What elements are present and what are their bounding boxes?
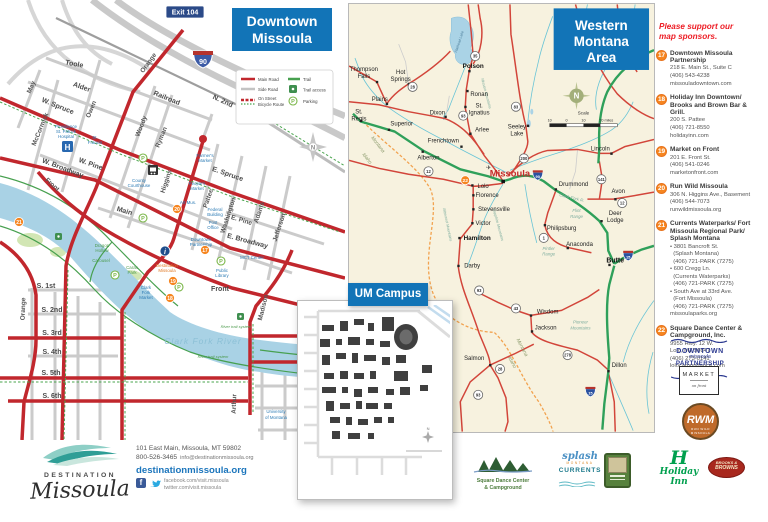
holiday-inn-text: Holiday Inn — [656, 467, 702, 487]
email-address: info@destinationmissoula.org — [180, 455, 253, 461]
poi-dragon-hollow: Hollow — [95, 248, 109, 253]
town-alberton: Alberton — [417, 155, 439, 161]
legend-trail: Trail — [303, 77, 311, 82]
interstate-15-shield: 15 — [585, 387, 595, 397]
sponsor-number-badge: 21 — [656, 220, 667, 231]
town-hamilton: Hamilton — [464, 235, 491, 242]
bus-transfer-icon — [148, 165, 158, 175]
poi-public-library: Library — [215, 273, 229, 278]
square-dance-text: Square Dance Center — [468, 478, 538, 485]
market-on-front-logo: MARKET on front — [679, 366, 719, 395]
town-victor: Victor — [476, 221, 491, 227]
exit-104-badge: Exit 104 — [166, 6, 204, 18]
sponsor-detail-line: (406) 543-4238 — [670, 73, 762, 81]
street-label-front-w: Front — [43, 177, 61, 194]
sponsor-detail-line: (406) 541-0246 — [670, 162, 762, 170]
town-lincoln: Lincoln — [591, 146, 610, 152]
sponsor-detail-line: 218 E. Main St., Suite C — [670, 65, 762, 73]
poi-hospital: Hospital — [58, 134, 74, 139]
street-label-s-2nd: S. 2nd — [41, 307, 62, 314]
sponsor-entry-19: 19 Market on Front 201 E. Front St.(406)… — [656, 146, 764, 177]
sponsor-entry-21: 21 Currents Waterparks/ Fort Missoula Re… — [656, 220, 764, 319]
street-label-higgins: Higgins — [160, 169, 174, 194]
svg-text:Western: Western — [575, 18, 628, 33]
sponsor-detail-line: runwildmissoula.org — [670, 207, 762, 215]
street-label-toole: Toole — [65, 59, 84, 69]
fort-missoula-text-bar — [610, 479, 625, 481]
holiday-h-icon: H — [656, 449, 702, 467]
svg-text:Scale: Scale — [578, 111, 590, 116]
square-dance-text: & Campground — [468, 485, 538, 492]
phone-number: 800-526-3465 — [136, 454, 177, 461]
svg-text:43: 43 — [514, 306, 519, 311]
sponsor-detail-line: (Fort Missoula) — [670, 296, 762, 304]
town-darby: Darby — [464, 264, 480, 270]
svg-text:12: 12 — [426, 169, 431, 174]
svg-text:N: N — [574, 92, 580, 101]
svg-text:22: 22 — [462, 178, 468, 184]
svg-text:0: 0 — [566, 119, 568, 123]
town-seeley-lake: Lake — [510, 132, 524, 138]
sponsor-entry-20: 20 Run Wild Missoula 306 N. Higgins Ave.… — [656, 183, 764, 214]
geo-label-pioneer-mountains: Pioneer — [573, 319, 589, 324]
downtown-title-box: Downtown Missoula — [232, 8, 332, 51]
legend-bike-route: On Street — [258, 96, 277, 101]
downtown-missoula-map: Toole Alder W. Spruce May McCormick Owen… — [0, 0, 345, 440]
town-wisdom: Wisdom — [537, 309, 559, 315]
compass-rose-icon: N — [563, 82, 591, 110]
trees-icon — [468, 456, 538, 473]
geo-label-montana: Montana — [369, 135, 386, 154]
street-label-madison: Madison — [257, 294, 270, 321]
geo-label-flint-range: Flint — [572, 208, 581, 213]
poi-st-francis: Francis — [88, 140, 103, 145]
hospital-icon: H — [62, 141, 73, 152]
sponsor-detail-line: (406) 721-8550 — [670, 125, 762, 133]
airport-icon: ✈ — [486, 164, 491, 171]
poi-clark-fork-market: Market — [139, 295, 153, 300]
town-seeley-lake: Seeley — [508, 125, 526, 131]
town-thompson-falls: Falls — [358, 74, 371, 80]
street-label-s-1st: S. 1st — [37, 283, 56, 290]
town-lolo: Lolo — [477, 184, 489, 190]
svg-text:N: N — [311, 145, 315, 151]
twitter-handle: twitter.com/visit.missoula — [164, 485, 229, 492]
brand-missoula-script: Missoula — [30, 478, 131, 503]
sponsor-detail-line: (Currents Waterparks) — [670, 274, 762, 282]
town-anaconda: Anaconda — [566, 242, 594, 248]
geo-label-pintler-range: Range — [542, 252, 555, 257]
sponsor-detail-line: missouladowntown.com — [670, 81, 762, 89]
wave-icon — [557, 481, 603, 487]
town-drummond: Drummond — [559, 182, 588, 188]
svg-text:90: 90 — [536, 174, 541, 179]
poi-courthouse: Courthouse — [128, 183, 151, 188]
website-url: destinationmissoula.org — [136, 465, 256, 476]
map-legend: Main Road Side Road On Street Bicycle Ro… — [236, 70, 333, 124]
river-trail-label: River trail system — [221, 324, 252, 329]
town-st-regis: Regis — [351, 117, 366, 123]
holiday-inn-logo: H Holiday Inn — [656, 449, 702, 487]
town-dillon: Dillon — [612, 363, 627, 369]
town-deer-lodge: Deer — [609, 211, 622, 217]
poi-peoples-market: Market — [190, 186, 204, 191]
town-hot-springs: Hot — [396, 70, 406, 76]
svg-text:Montana: Montana — [574, 34, 630, 49]
legend-bike-route: Bicycle Route — [258, 102, 285, 107]
sponsor-entry-18: 18 Holiday Inn Downtown/ Brooks and Brow… — [656, 94, 764, 140]
poi-caras-park: Park — [127, 270, 137, 275]
street-label-s-4th: S. 4th — [42, 349, 61, 356]
divider — [690, 380, 708, 381]
sponsor-detail-line: (406) 721-PARK (7275) — [670, 259, 762, 267]
poi-downtown-partnership: Partnership — [190, 242, 213, 247]
town-thompson-falls: Thompson — [350, 67, 378, 73]
street-label-s-3rd: S. 3rd — [42, 330, 61, 337]
poi-carousel: Carousel — [92, 258, 110, 263]
svg-text:P: P — [141, 216, 145, 222]
svg-text:12: 12 — [620, 201, 625, 206]
sponsor-detail-line: • 3801 Bancroft St. — [670, 244, 762, 252]
swoosh-icon — [37, 440, 123, 466]
town-philipsburg: Philipsburg — [547, 226, 576, 232]
svg-text:28: 28 — [410, 84, 415, 89]
holiday-inn-brooks-logos: H Holiday Inn BROOKS & BROWNS — [656, 449, 766, 487]
geo-label-bitterroot-mountains: Bitterroot Mountains — [442, 208, 453, 242]
svg-text:93: 93 — [461, 113, 466, 118]
town-jackson: Jackson — [535, 325, 557, 331]
town-deer-lodge: Lodge — [607, 218, 624, 224]
river-name-label: Clark Fork River — [164, 336, 242, 346]
um-campus-title-box: UM Campus — [348, 283, 428, 306]
poi-university: University — [266, 409, 286, 414]
poi-federal-building: Building — [207, 212, 223, 217]
geo-label-pioneer-mountains: Mountains — [570, 325, 591, 330]
street-label-arthur: Arthur — [231, 393, 239, 414]
svg-text:28: 28 — [498, 367, 503, 372]
town-stevensville: Stevensville — [478, 207, 510, 213]
currents-text: CURRENTS — [554, 467, 606, 474]
street-label-alder: Alder — [72, 81, 91, 94]
svg-text:10: 10 — [548, 119, 552, 123]
um-campus-map: N — [302, 305, 450, 477]
svg-text:83: 83 — [514, 104, 519, 109]
sponsor-detail-line: • South Ave at 33rd Ave. — [670, 289, 762, 297]
svg-text:93: 93 — [477, 288, 482, 293]
sponsors-sidebar: Please support our map sponsors. 17 Down… — [656, 22, 764, 377]
poi-university: of Montana — [265, 415, 288, 420]
fort-missoula-text-bar — [610, 475, 625, 477]
run-wild-missoula-logo: RWM RUN WILD MISSOULA — [682, 403, 719, 440]
sponsor-detail-line: (406) 721-PARK (7275) — [670, 304, 762, 312]
town-butte: Butte — [606, 258, 624, 265]
sponsor-name: Downtown Missoula Partnership — [670, 50, 762, 65]
legend-parking: Parking — [303, 99, 318, 104]
svg-text:10: 10 — [581, 119, 585, 123]
square-dance-logo: Square Dance Center & Campground — [468, 456, 538, 491]
river-trail-label: River trail system — [198, 354, 229, 359]
svg-text:278: 278 — [564, 353, 572, 358]
svg-text:Missoula: Missoula — [252, 30, 312, 46]
sponsor-number-badge: 22 — [656, 325, 667, 336]
splash-currents-logo: splash MONTANA CURRENTS — [554, 451, 606, 492]
contact-block: 101 East Main, Missoula, MT 59802 800-52… — [136, 445, 256, 492]
svg-text:93: 93 — [476, 392, 481, 397]
brooks-logo-text: BROWNS — [709, 466, 744, 472]
street-label-n-2nd: N. 2nd — [211, 94, 233, 109]
sponsor-name: Run Wild Missoula — [670, 183, 762, 190]
svg-text:N: N — [427, 426, 430, 431]
svg-text:P: P — [113, 273, 117, 279]
street-label-orange-s: Orange — [20, 297, 28, 320]
address-line: 101 East Main, Missoula, MT 59802 — [136, 445, 256, 454]
svg-text:P: P — [141, 156, 145, 162]
sponsor-name: Holiday Inn Downtown/ Brooks and Brown B… — [670, 94, 762, 116]
wave-icon — [671, 338, 729, 343]
campus-diagonal-road — [418, 311, 450, 337]
interstate-15-shield: 15 — [623, 251, 633, 261]
geo-label-pintler-range: Pintler — [543, 246, 556, 251]
town-avon: Avon — [612, 189, 625, 195]
town-florence: Florence — [476, 193, 500, 199]
sponsor-detail-line: 201 E. Front St. — [670, 155, 762, 163]
town-dixon: Dixon — [430, 111, 445, 117]
destination-missoula-logo: DESTINATION Missoula — [30, 440, 130, 502]
svg-text:18: 18 — [167, 296, 173, 302]
svg-text:15: 15 — [588, 390, 593, 395]
poi-farmers-market: Market — [198, 158, 212, 163]
sponsor-detail-line: holidayinn.com — [670, 133, 762, 141]
svg-text:20 miles: 20 miles — [599, 119, 613, 123]
svg-text:200: 200 — [520, 156, 528, 161]
stadium-field — [400, 330, 413, 345]
street-label-s-5th: S. 5th — [41, 370, 60, 377]
svg-text:15: 15 — [626, 254, 631, 259]
sponsor-detail-line: missoulaparks.org — [670, 311, 762, 319]
street-label-s-6th: S. 6th — [42, 393, 61, 400]
sponsor-number-badge: 19 — [656, 146, 667, 157]
svg-text:P: P — [177, 285, 181, 291]
poi-destination-missoula: Missoula — [158, 268, 176, 273]
market-logo-text: on front — [680, 383, 718, 388]
brooks-and-browns-logo: BROOKS & BROWNS — [708, 457, 745, 478]
western-title-box: Western Montana Area — [554, 8, 649, 70]
geo-label-clark-fork-river: Clark Fork R. — [559, 192, 585, 203]
town-hot-springs: Springs — [391, 77, 411, 83]
map-brochure-page: Toole Alder W. Spruce May McCormick Owen… — [0, 0, 768, 522]
info-icon: i — [160, 246, 170, 256]
town-st-ignatius: Ignatius — [469, 111, 490, 117]
sponsor-name: Market on Front — [670, 146, 762, 153]
svg-text:P: P — [219, 259, 223, 265]
svg-text:Exit 104: Exit 104 — [172, 10, 199, 17]
poi-post-office: Office — [207, 225, 219, 230]
sponsor-detail-line: 200 S. Pattee — [670, 117, 762, 125]
sponsor-detail-line: (406) 721-PARK (7275) — [670, 281, 762, 289]
svg-text:35: 35 — [473, 54, 478, 59]
street-label-pattee: Pattee — [202, 188, 215, 209]
sponsor-entry-17: 17 Downtown Missoula Partnership 218 E. … — [656, 50, 764, 89]
campus-compass-icon: N — [422, 426, 434, 443]
sponsor-map-marker-22: 22 — [461, 176, 470, 185]
scale-bar: Scale 10 0 10 20 miles — [548, 111, 618, 127]
sponsor-detail-line: (406) 544-7073 — [670, 199, 762, 207]
svg-text:21: 21 — [16, 220, 22, 226]
twitter-bird-icon — [149, 478, 161, 488]
sponsors-heading: Please support our map sponsors. — [659, 22, 743, 43]
sponsor-number-badge: 17 — [656, 50, 667, 61]
fort-missoula-logo — [604, 453, 631, 488]
sponsor-detail-line: (Splash Montana) — [670, 251, 762, 259]
svg-text:19: 19 — [170, 279, 176, 285]
poi-mct-center: MCT Center — [240, 255, 264, 260]
missoula-dot — [501, 180, 505, 184]
svg-text:Area: Area — [586, 50, 616, 65]
svg-text:17: 17 — [202, 248, 208, 254]
street-label-e-pine: E. Pine — [230, 214, 253, 227]
legend-trail-access: Trail access — [303, 88, 326, 93]
svg-text:Downtown: Downtown — [247, 13, 318, 29]
poi-art-museum: Art Mus. — [180, 200, 196, 205]
sponsor-detail-line: 306 N. Higgins Ave., Basement — [670, 192, 762, 200]
legend-side-road: Side Road — [258, 87, 279, 92]
svg-text:90: 90 — [199, 59, 207, 66]
town-st-regis: St. — [355, 110, 363, 116]
road-end-bulb — [199, 135, 207, 143]
city-missoula: Missoula — [490, 167, 531, 178]
facebook-handle: facebook.com/visit.missoula — [164, 478, 229, 485]
sponsor-number-badge: 20 — [656, 183, 667, 194]
sponsor-detail-line: marketonfront.com — [670, 170, 762, 178]
geo-label-flint-range: Range — [570, 214, 583, 219]
svg-text:20: 20 — [174, 207, 180, 213]
market-logo-text: MARKET — [680, 372, 718, 378]
legend-main-road: Main Road — [258, 77, 279, 82]
town-plains: Plains — [372, 97, 388, 103]
town-superior: Superior — [390, 122, 413, 128]
svg-text:P: P — [291, 99, 295, 105]
town-ronan: Ronan — [470, 92, 488, 98]
town-arlee: Arlee — [475, 128, 490, 134]
sponsor-name: Currents Waterparks/ Fort Missoula Regio… — [670, 220, 762, 242]
facebook-icon: f — [136, 478, 146, 488]
sponsor-detail-line: • 600 Cregg Ln. — [670, 266, 762, 274]
fort-missoula-photo — [608, 457, 627, 473]
sponsor-number-badge: 18 — [656, 94, 667, 105]
svg-text:H: H — [65, 143, 71, 152]
um-campus-inset: N — [297, 300, 453, 500]
town-frenchtown: Frenchtown — [428, 138, 459, 144]
side-streets-upper-tangle — [8, 0, 150, 92]
street-label-front-e: Front — [211, 286, 230, 293]
svg-text:141: 141 — [598, 177, 606, 182]
phone-email-line: 800-526-3465info@destinationmissoula.org — [136, 454, 256, 463]
town-salmon: Salmon — [464, 356, 484, 362]
town-st-ignatius: St. — [476, 104, 484, 110]
town-polson: Polson — [463, 63, 484, 70]
